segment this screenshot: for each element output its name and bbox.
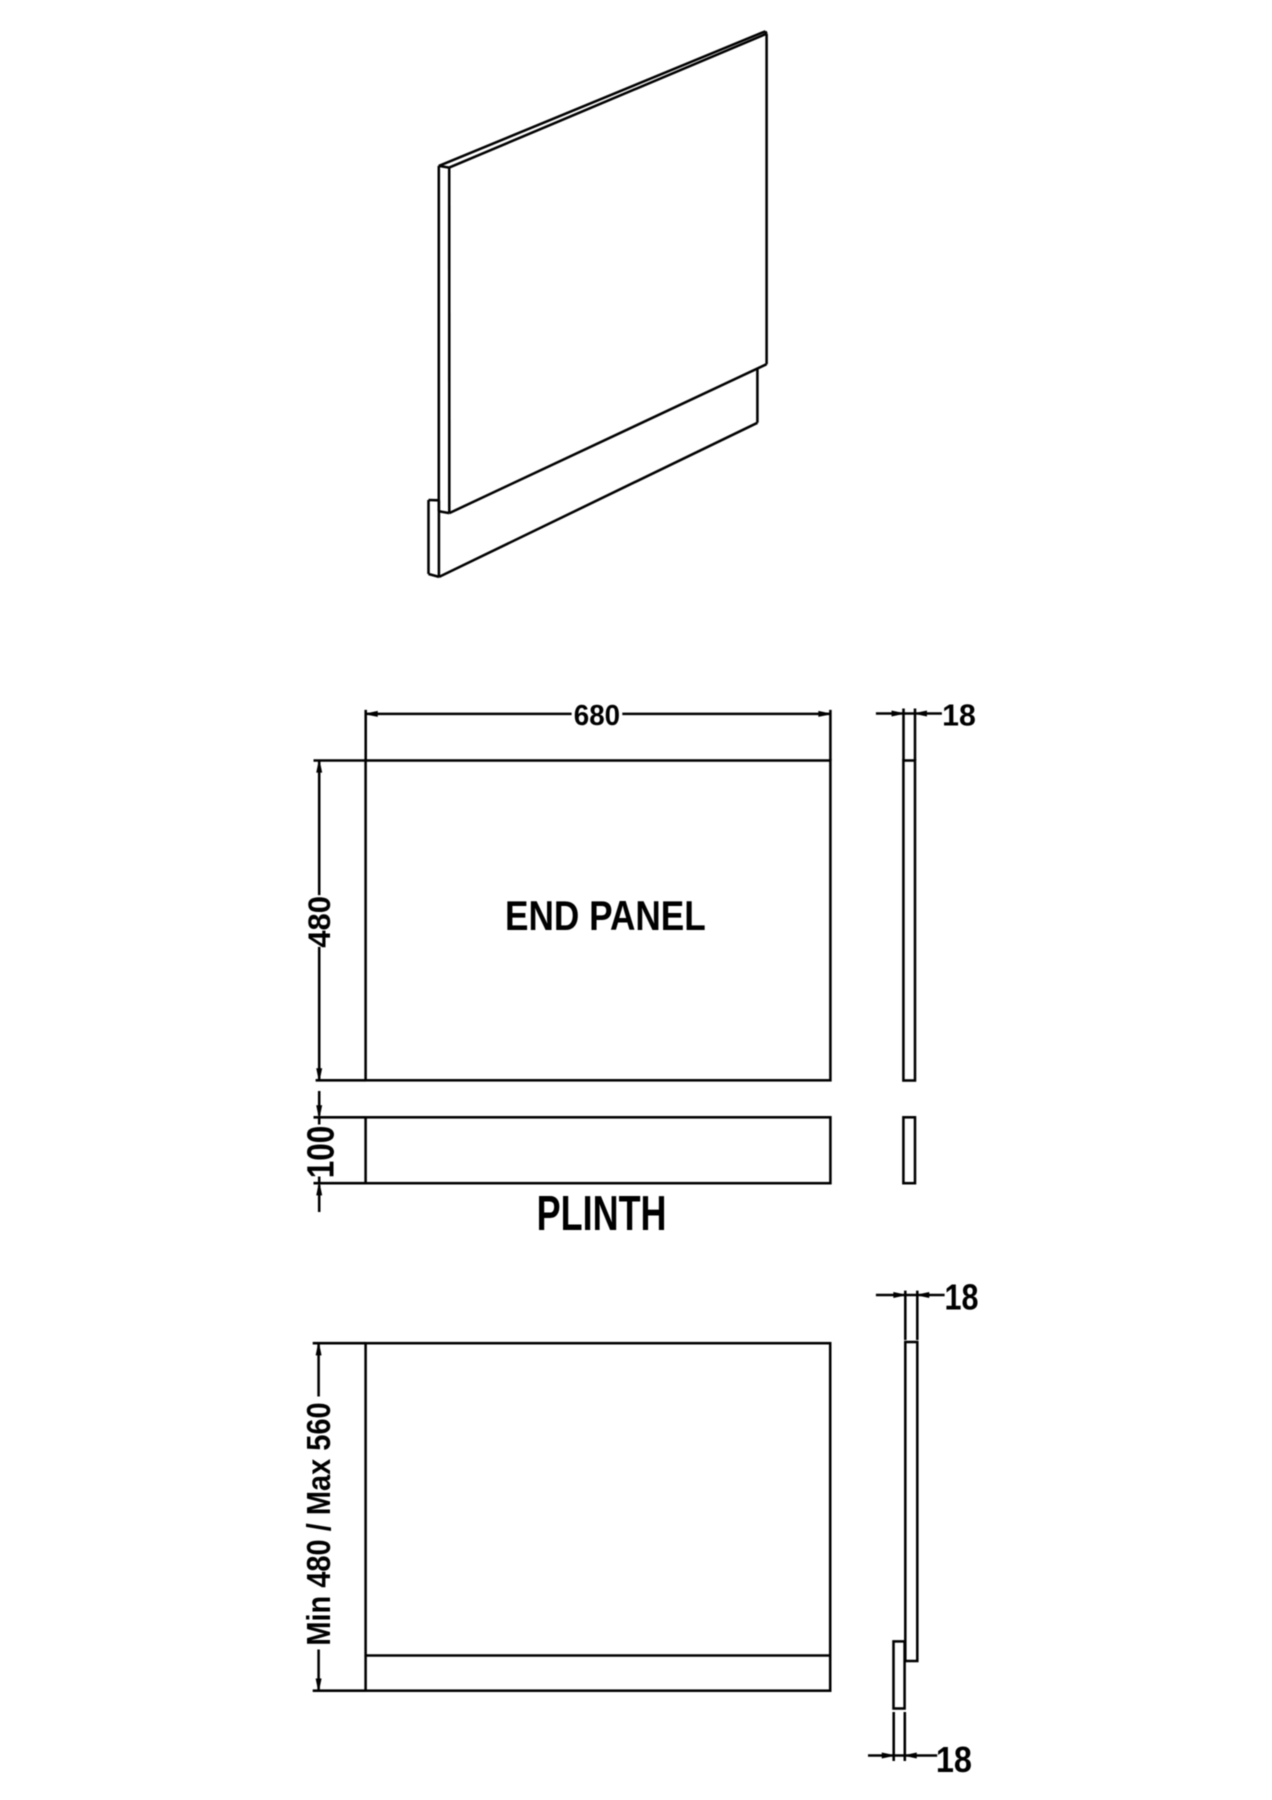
svg-text:18: 18 [945, 1278, 979, 1318]
svg-text:680: 680 [574, 699, 620, 732]
svg-text:Min 480 / Max 560: Min 480 / Max 560 [300, 1402, 337, 1645]
svg-text:END PANEL: END PANEL [505, 893, 706, 940]
svg-text:PLINTH: PLINTH [537, 1187, 667, 1242]
svg-text:18: 18 [942, 698, 976, 732]
svg-text:480: 480 [302, 896, 337, 948]
svg-text:18: 18 [936, 1740, 972, 1780]
svg-text:100: 100 [300, 1126, 342, 1179]
